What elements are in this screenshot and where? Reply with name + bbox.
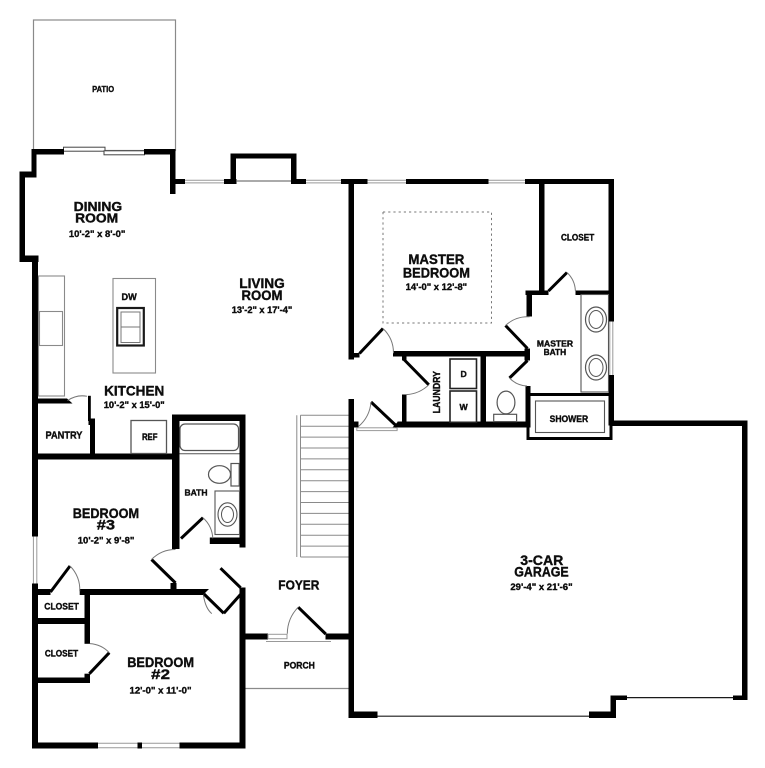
svg-text:10'-2" x 8'-0": 10'-2" x 8'-0" [69,229,126,240]
svg-text:LAUNDRY: LAUNDRY [432,371,443,413]
svg-text:BATH: BATH [184,488,207,498]
svg-text:ROOM: ROOM [242,288,283,303]
svg-text:PANTRY: PANTRY [46,430,83,442]
svg-text:W: W [459,402,468,412]
svg-text:#3: #3 [97,518,116,533]
svg-text:REF: REF [142,432,158,442]
svg-text:CLOSET: CLOSET [561,233,595,243]
svg-text:KITCHEN: KITCHEN [104,384,164,399]
svg-text:BEDROOM: BEDROOM [403,266,470,281]
svg-text:BATH: BATH [544,347,567,357]
svg-text:10'-2" x 9'-8": 10'-2" x 9'-8" [78,536,135,547]
svg-text:CLOSET: CLOSET [44,601,79,611]
svg-text:GARAGE: GARAGE [514,565,568,580]
svg-text:CLOSET: CLOSET [45,649,79,659]
svg-text:13'-2" x 17'-4": 13'-2" x 17'-4" [232,305,293,316]
svg-text:ROOM: ROOM [75,211,118,226]
svg-text:PATIO: PATIO [92,84,114,94]
svg-text:D: D [460,369,466,379]
svg-text:#2: #2 [151,667,170,682]
svg-text:SHOWER: SHOWER [550,413,589,424]
svg-text:DW: DW [122,292,137,303]
svg-text:12'-0" x 11'-0": 12'-0" x 11'-0" [130,685,192,696]
svg-text:PORCH: PORCH [284,661,315,671]
svg-text:29'-4" x 21'-6": 29'-4" x 21'-6" [510,582,572,593]
svg-text:14'-0" x 12'-8": 14'-0" x 12'-8" [406,282,468,293]
svg-text:FOYER: FOYER [278,577,320,592]
svg-text:10'-2" x 15'-0": 10'-2" x 15'-0" [104,400,165,411]
